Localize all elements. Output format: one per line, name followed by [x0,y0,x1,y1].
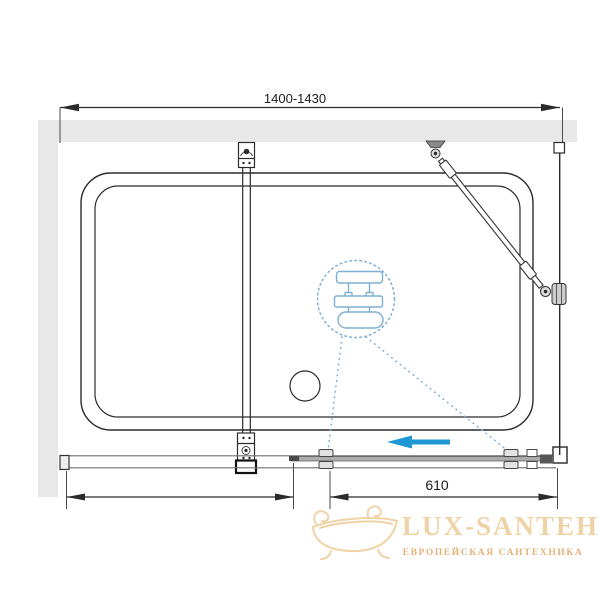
dimension-top-label: 1400-1430 [264,91,326,106]
dimension-door: 610 [330,468,558,509]
shower-enclosure-technical-drawing: 1400-1430 610 LUX-SANTEH ЕВРОПЕЙСКАЯ САН… [0,0,600,600]
rail-end-cap [60,456,69,470]
support-bar-wall-plate [426,141,445,148]
arrowhead-left-icon [60,104,79,111]
arrowhead-left-icon [330,494,349,501]
wall-top [38,120,577,142]
door-glass-edge [291,457,545,462]
door-end-bracket [540,455,552,464]
side-glass-top-anchor [554,143,565,154]
wall-left [38,120,58,497]
arrowhead-left-icon [67,494,86,501]
dimension-bottom-left [67,463,294,509]
bathtub-icon [313,506,397,559]
arrowhead-right-icon [541,104,560,111]
door-stopper [289,456,299,461]
drain-circle [290,371,320,401]
showerhead-icon [335,272,384,329]
watermark-tagline: ЕВРОПЕЙСКАЯ САНТЕХНИКА [403,546,584,558]
slide-direction-arrow-icon [387,436,450,449]
support-bar-glass-clamp [552,284,566,305]
bottom-wall-profile [236,433,256,473]
watermark: LUX-SANTEH ЕВРОПЕЙСКАЯ САНТЕХНИКА [313,506,599,559]
arrowhead-right-icon [275,494,294,501]
sliding-door [289,447,567,469]
shower-tray [81,173,533,430]
dimension-door-label: 610 [425,477,449,493]
watermark-brand: LUX-SANTEH [402,511,599,541]
arrowhead-right-icon [539,494,558,501]
top-wall-profile [239,143,255,168]
drawing-canvas: 1400-1430 610 LUX-SANTEH ЕВРОПЕЙСКАЯ САН… [0,0,600,600]
